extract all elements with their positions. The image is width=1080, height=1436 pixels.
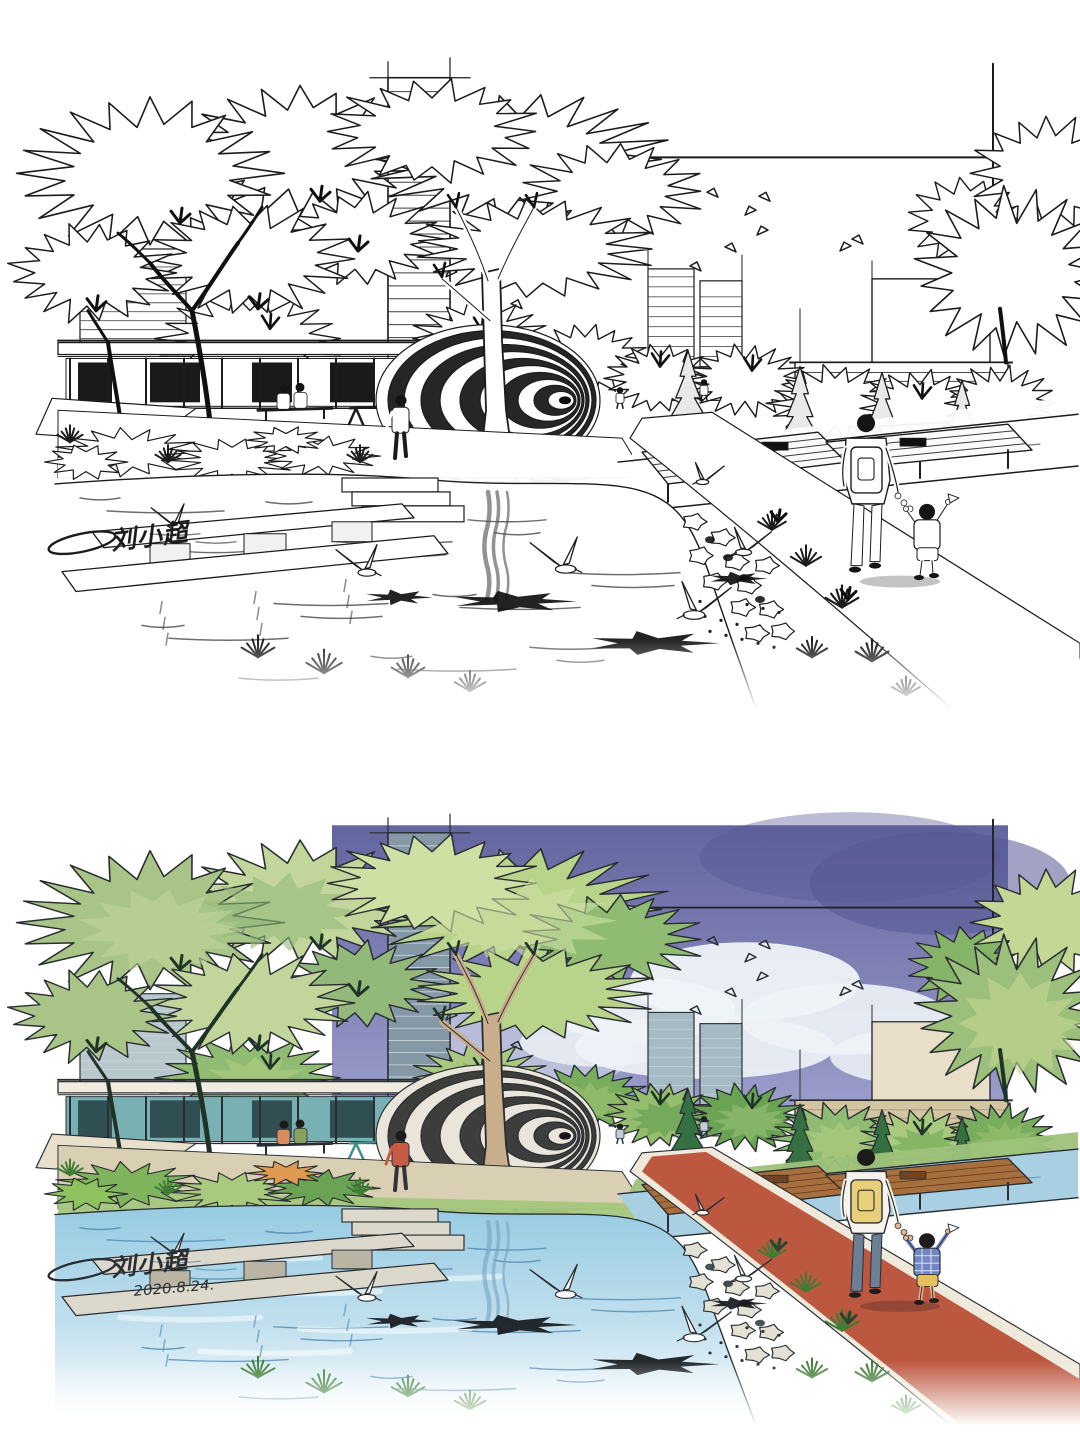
paper-fade — [40, 1361, 1080, 1427]
sketch-sheet: 刘小超 刘小超2020.8.24. — [0, 0, 1080, 1436]
ink-sketch-panel: 刘小超 — [0, 12, 1080, 709]
marker-color-rendering-drawing: 刘小超2020.8.24. — [0, 771, 1080, 1426]
ink-line-sketch-drawing: 刘小超 — [0, 12, 1080, 709]
paper-fade — [40, 639, 1080, 709]
color-rendering-panel: 刘小超2020.8.24. — [0, 771, 1080, 1426]
